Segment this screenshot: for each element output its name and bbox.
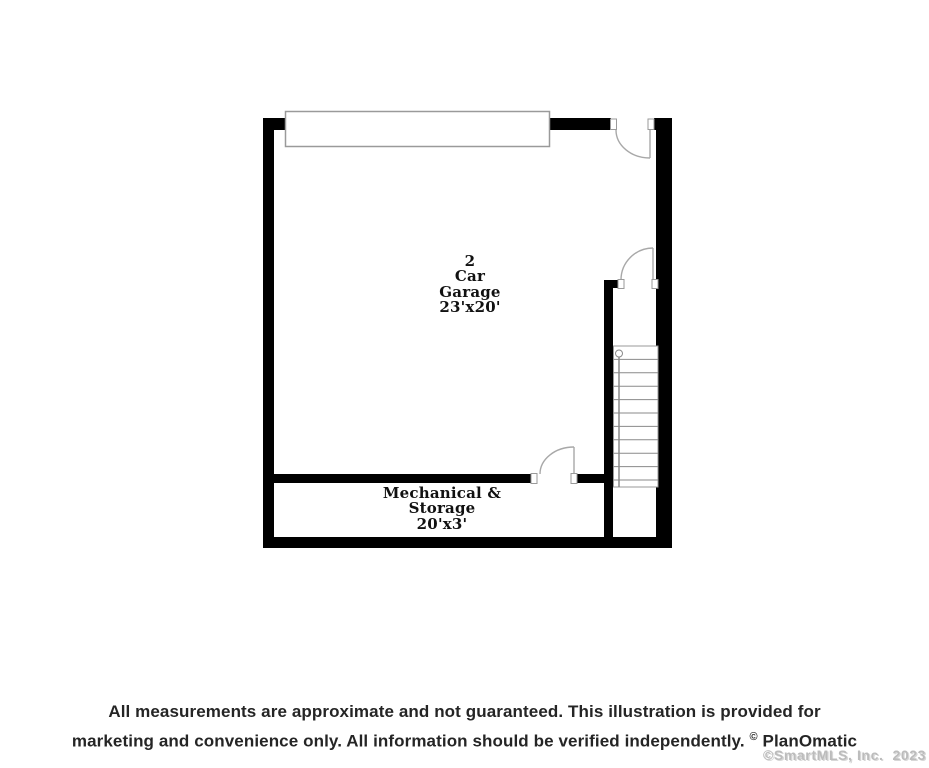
wall-divider-seg-right [577,474,613,483]
garage-label-dimensions: 23'x20' [370,300,570,315]
wall-stairwell-west [604,280,613,548]
floor-plan-drawing [0,0,929,690]
mechanical-label-dimensions: 20'x3' [342,517,542,532]
garage-door [286,112,550,147]
stairwell-door-swing-arc [621,248,653,280]
mechanical-door-jamb-right [571,474,577,484]
entry-door-jamb-left [611,119,617,130]
wall-top-seg-mid [550,118,611,130]
mechanical-door-jamb-left [531,474,537,484]
mechanical-room-label: Mechanical & Storage 20'x3' [342,486,542,532]
stair-newel-post-icon [616,350,623,357]
disclaimer-text: All measurements are approximate and not… [0,700,929,754]
mechanical-door [531,447,577,484]
stairs [614,346,659,487]
disclaimer-line-2: marketing and convenience only. All info… [72,731,750,750]
disclaimer-line-1: All measurements are approximate and not… [108,702,820,721]
wall-left [263,118,274,548]
wall-top-seg-corner [654,118,672,130]
floor-plan-page: 2 Car Garage 23'x20' Mechanical & Storag… [0,0,929,768]
entry-door-swing-arc [616,130,650,158]
entry-door [611,119,655,158]
entry-door-jamb-right [648,119,654,130]
copyright-symbol: © [750,731,758,743]
smartmls-watermark: ©SmartMLS, Inc. 2023 [763,747,926,763]
stairwell-door [618,248,658,289]
wall-top-seg-left [263,118,287,130]
stairwell-door-jamb-right [652,280,658,289]
wall-divider-seg-left [274,474,531,483]
stairwell-door-jamb-left [618,280,624,289]
stairs-outline [614,346,659,487]
mechanical-door-swing-arc [540,447,574,474]
garage-room-label: 2 Car Garage 23'x20' [370,254,570,316]
